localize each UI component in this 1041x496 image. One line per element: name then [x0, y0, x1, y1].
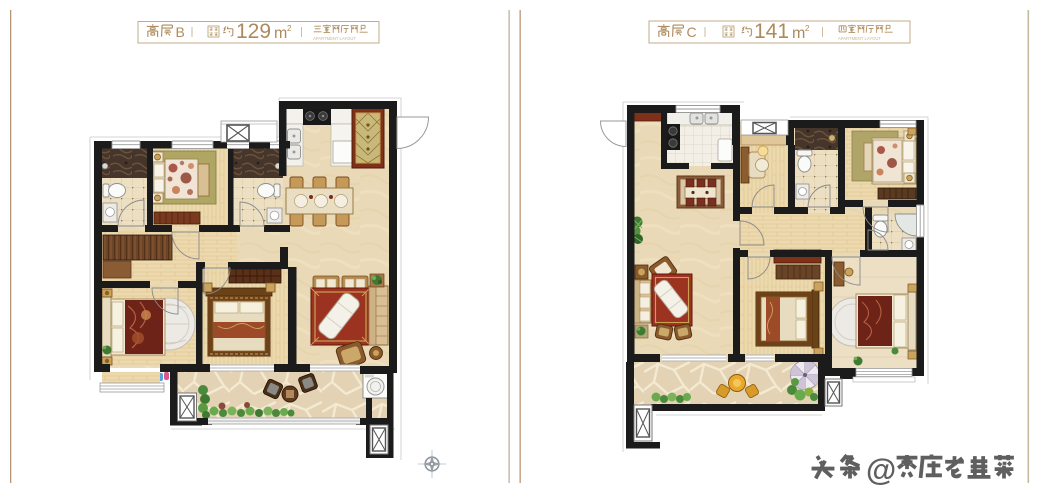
svg-text:@: @ — [866, 452, 896, 487]
svg-text:129: 129 — [236, 20, 271, 43]
svg-text:APARTMENT LAYOUT: APARTMENT LAYOUT — [313, 36, 356, 41]
svg-text:B: B — [176, 24, 185, 40]
svg-text:m: m — [274, 25, 287, 42]
svg-text:141: 141 — [754, 20, 789, 43]
svg-text:2: 2 — [287, 24, 292, 33]
svg-text:APARTMENT LAYOUT: APARTMENT LAYOUT — [838, 36, 881, 41]
svg-text:m: m — [792, 25, 805, 42]
svg-text:2: 2 — [805, 24, 810, 33]
svg-text:C: C — [687, 24, 697, 40]
